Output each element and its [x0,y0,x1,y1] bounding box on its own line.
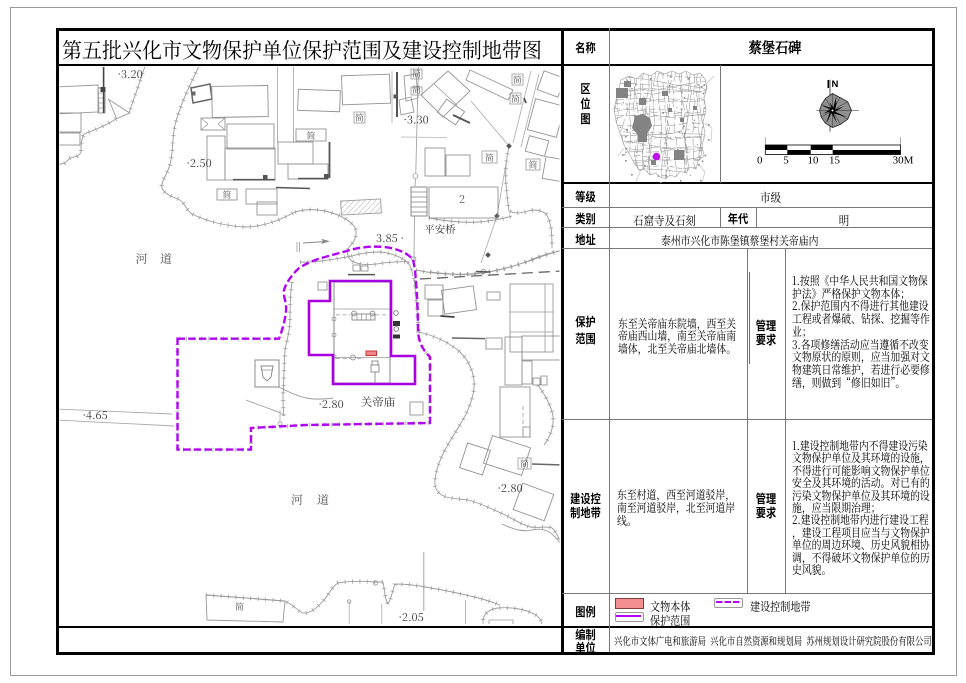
svg-text:简: 简 [412,67,421,80]
svg-text:简: 简 [222,188,231,201]
svg-text:2: 2 [459,191,465,207]
svg-text:·2.80: ·2.80 [318,396,343,412]
svg-text:简: 简 [306,129,315,142]
svg-text:·3.20: ·3.20 [117,66,142,82]
svg-text:·4.65: ·4.65 [82,407,107,423]
svg-text:道: 道 [160,250,172,267]
svg-text:简: 简 [520,457,529,470]
svg-text:河: 河 [135,250,147,267]
svg-text:道: 道 [317,491,329,508]
svg-text:平安桥: 平安桥 [424,222,456,237]
svg-text:·2.80: ·2.80 [497,480,522,496]
svg-text:·3.30: ·3.30 [403,112,428,128]
svg-text:简: 简 [235,600,244,613]
svg-text:河: 河 [291,491,303,508]
svg-text:简: 简 [412,83,421,96]
svg-text:简: 简 [355,111,364,124]
svg-text:关帝庙: 关帝庙 [361,394,396,410]
svg-text:3.85 ·: 3.85 · [376,230,404,246]
svg-text:·2.05: ·2.05 [398,609,423,625]
svg-text:简: 简 [528,158,537,171]
svg-text:简: 简 [511,92,520,105]
svg-text:·2.50: ·2.50 [186,155,211,171]
svg-text:简: 简 [485,151,494,164]
svg-text:简: 简 [513,73,522,86]
